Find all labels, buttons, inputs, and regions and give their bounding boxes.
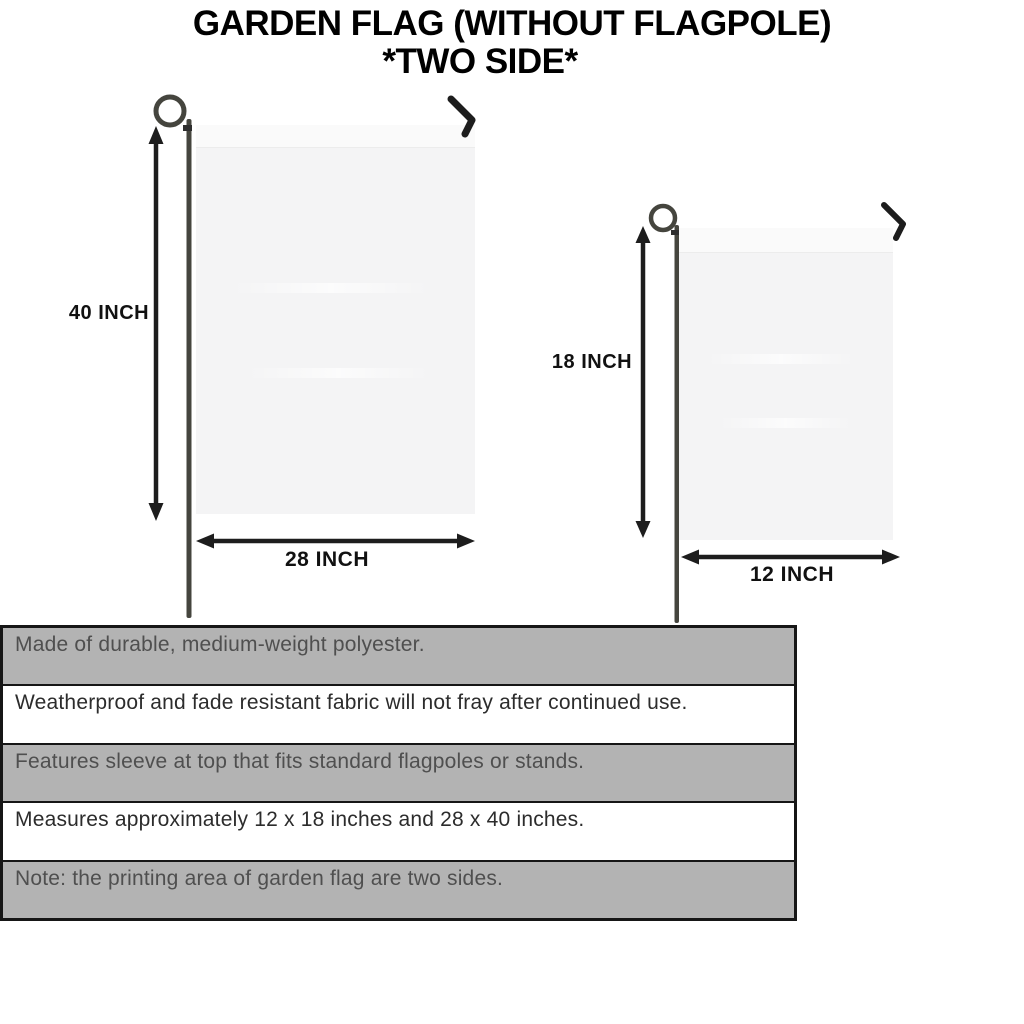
page-title: GARDEN FLAG (WITHOUT FLAGPOLE)	[0, 4, 1024, 44]
flagpole-small	[651, 206, 679, 623]
fabric-crease	[231, 283, 431, 293]
dimension-label-width-small: 12 INCH	[732, 563, 852, 587]
feature-text: Weatherproof and fade resistant fabric w…	[15, 691, 688, 714]
flag-sleeve-large	[196, 125, 475, 148]
flag-small	[678, 228, 893, 540]
width-arrow-large	[196, 534, 475, 549]
flagpole-loop-icon	[651, 206, 675, 230]
flagpole-clip-icon	[183, 125, 192, 131]
title-block: GARDEN FLAG (WITHOUT FLAGPOLE) *TWO SIDE…	[0, 4, 1024, 80]
feature-row: Measures approximately 12 x 18 inches an…	[3, 803, 794, 861]
feature-text: Made of durable, medium-weight polyester…	[15, 633, 425, 656]
garden-flag-infographic: GARDEN FLAG (WITHOUT FLAGPOLE) *TWO SIDE…	[0, 0, 1024, 1024]
height-arrow-small	[636, 226, 651, 538]
feature-row: Made of durable, medium-weight polyester…	[3, 628, 794, 686]
dimension-label-width-large: 28 INCH	[267, 548, 387, 572]
feature-text: Measures approximately 12 x 18 inches an…	[15, 808, 584, 831]
fabric-crease	[718, 418, 853, 428]
flagpole-loop-icon	[156, 97, 184, 125]
dimension-label-height-large: 40 INCH	[54, 302, 164, 325]
flag-large	[196, 125, 475, 514]
feature-table: Made of durable, medium-weight polyester…	[0, 625, 797, 921]
dimension-label-height-small: 18 INCH	[532, 351, 652, 374]
feature-row: Weatherproof and fade resistant fabric w…	[3, 686, 794, 744]
feature-text: Note: the printing area of garden flag a…	[15, 867, 503, 890]
flagpole-stake-icon	[187, 119, 192, 618]
page-subtitle: *TWO SIDE*	[0, 44, 992, 80]
feature-row: Features sleeve at top that fits standar…	[3, 745, 794, 803]
feature-row: Note: the printing area of garden flag a…	[3, 862, 794, 918]
fabric-crease	[246, 368, 431, 378]
feature-text: Features sleeve at top that fits standar…	[15, 750, 584, 773]
flagpole-large	[156, 97, 192, 618]
fabric-crease	[706, 354, 856, 364]
flag-sleeve-small	[678, 228, 893, 253]
